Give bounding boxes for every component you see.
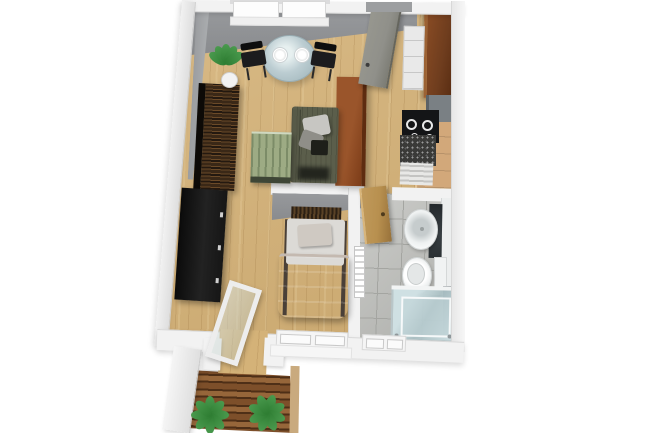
chair-leg bbox=[328, 69, 332, 81]
top-window-sash bbox=[233, 1, 279, 18]
chair-leg bbox=[263, 65, 267, 77]
sofa-shadow bbox=[311, 140, 328, 155]
burner-icon bbox=[406, 119, 417, 130]
window-pane bbox=[280, 334, 311, 345]
sofa-shadow bbox=[298, 167, 329, 181]
bed-blanket bbox=[278, 253, 350, 319]
drain bbox=[420, 227, 424, 231]
toilet-seat bbox=[407, 263, 425, 285]
door-handle bbox=[381, 212, 385, 216]
cabinet-handle bbox=[216, 278, 219, 283]
chair-leg bbox=[311, 66, 315, 78]
shower-frame-bar bbox=[392, 285, 459, 290]
bed-pillow bbox=[297, 223, 332, 247]
door-handle bbox=[365, 63, 370, 68]
entrance-doorway bbox=[366, 2, 412, 12]
floor-plan-render bbox=[0, 0, 650, 433]
towel-radiator bbox=[354, 246, 365, 298]
top-window-sill bbox=[230, 16, 329, 26]
balcony-plant-left bbox=[192, 394, 228, 430]
sofa bbox=[290, 106, 339, 183]
chair-leg bbox=[246, 68, 250, 80]
balcony-plant-right bbox=[249, 392, 285, 428]
plate bbox=[272, 47, 288, 63]
balcony-deck-edge bbox=[289, 366, 299, 433]
window-pane bbox=[387, 339, 403, 350]
plate bbox=[294, 47, 310, 63]
glass-shower bbox=[390, 286, 456, 342]
coffee-table bbox=[250, 131, 291, 183]
exterior-wall-right bbox=[451, 1, 465, 352]
window-pane bbox=[315, 335, 345, 346]
washbasin bbox=[404, 209, 438, 250]
room-divider bbox=[335, 77, 367, 186]
single-bed bbox=[277, 201, 352, 323]
cabinet-handle bbox=[220, 212, 223, 217]
cabinet-handle bbox=[218, 245, 221, 250]
burner-icon bbox=[422, 120, 433, 131]
granite-counter bbox=[400, 135, 436, 166]
toilet-cistern bbox=[434, 257, 447, 288]
bathroom-window bbox=[362, 334, 407, 352]
shower-inner-glass bbox=[401, 297, 452, 338]
kitchen-vented-cabinet bbox=[400, 162, 434, 185]
kitchen-drawer-unit bbox=[402, 26, 425, 91]
top-window-sash bbox=[282, 1, 326, 18]
window-pane bbox=[366, 338, 384, 349]
tv-lowboard bbox=[174, 188, 227, 303]
zebra-wardrobe bbox=[193, 83, 239, 191]
plant-pot bbox=[221, 72, 238, 88]
bathroom-door bbox=[359, 186, 392, 245]
